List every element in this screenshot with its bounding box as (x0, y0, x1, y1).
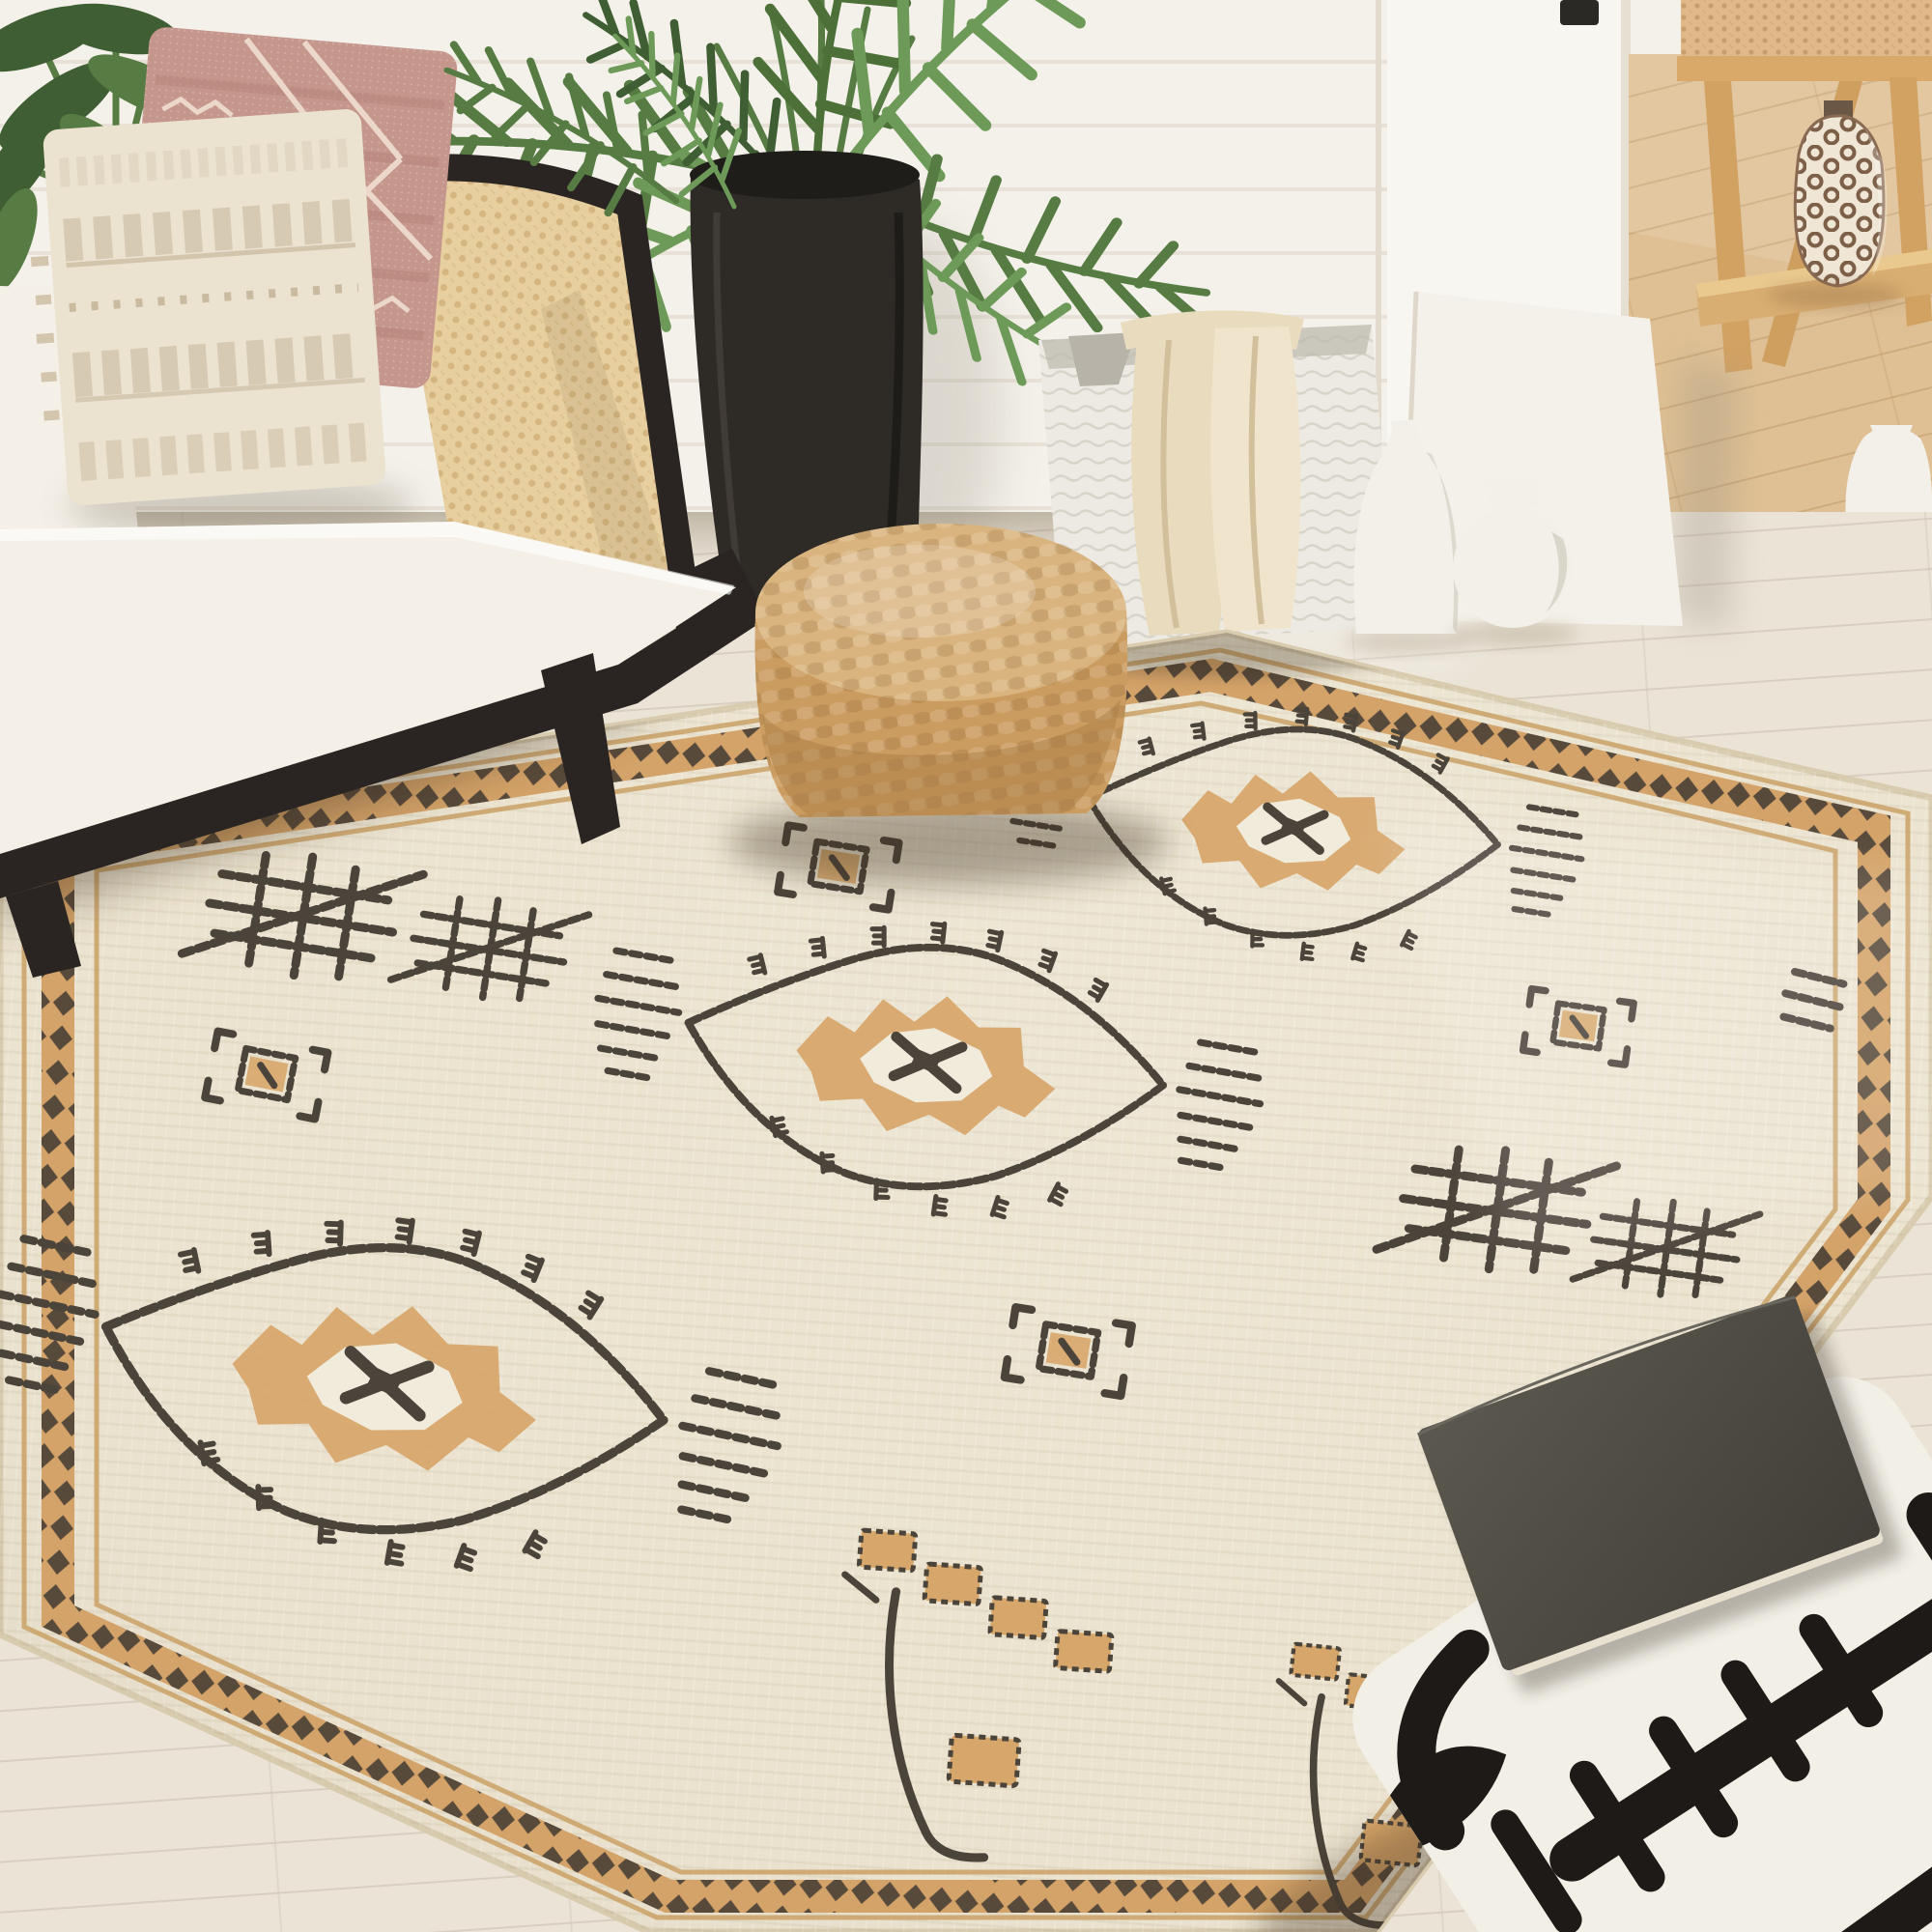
living-room-photo (0, 0, 1932, 1932)
scene-canvas (0, 0, 1932, 1932)
jute-pouf (755, 524, 1128, 817)
cream-tassel-pillow (22, 108, 386, 508)
door-latch (1560, 0, 1599, 25)
cream-throw-blanket (1121, 310, 1304, 636)
